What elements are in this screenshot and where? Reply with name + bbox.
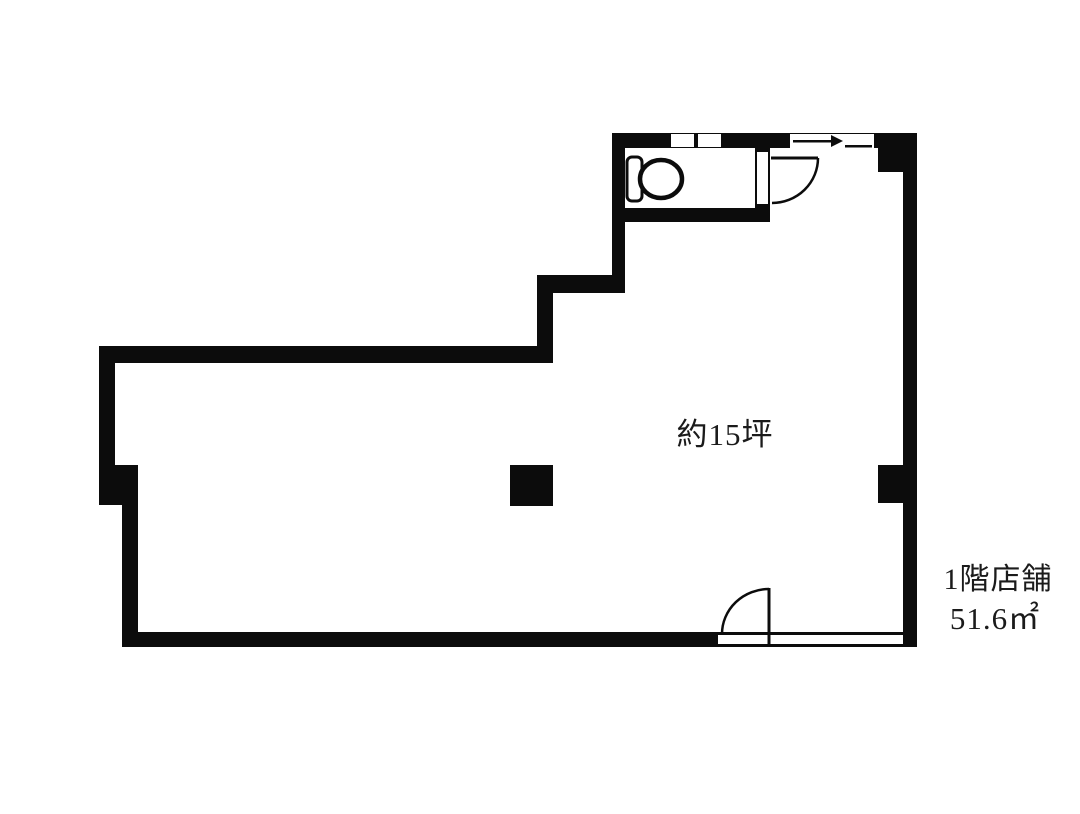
floorplan-canvas: 約15坪 1階店舗 51.6㎡ [0,0,1080,814]
entrance-door-arc [722,589,769,634]
sliding-window-sash [845,145,872,148]
toilet-icon [627,157,682,201]
wall-bottom [122,632,720,647]
unit-floor-label: 1階店舗 [920,563,1076,596]
wall-right [903,133,917,647]
unit-size-label: 51.6㎡ [920,602,1070,636]
entrance-opening [718,632,903,647]
pillar-mid-right [878,465,917,503]
pillar-top-right [878,133,917,172]
wall-toilet-bottom [612,208,770,222]
entrance-threshold-line-bottom [718,644,903,647]
walls [99,133,917,647]
wall-left-lower [122,465,138,647]
toilet-door-arc [772,158,818,203]
entrance-threshold-line-top [718,632,903,635]
floorplan-drawing [0,0,1080,814]
toilet-doorway-gap [757,152,768,204]
sliding-window-track [793,140,831,143]
room-area-label: 約15坪 [640,418,810,452]
toilet-bowl [640,160,682,198]
window-pane [671,134,694,147]
sliding-window-icon [790,134,874,149]
toilet-door-swing-icon [771,158,818,203]
pillar-freestanding [510,465,553,506]
window-pane [698,134,721,147]
wall-lower-room-top [99,346,553,363]
